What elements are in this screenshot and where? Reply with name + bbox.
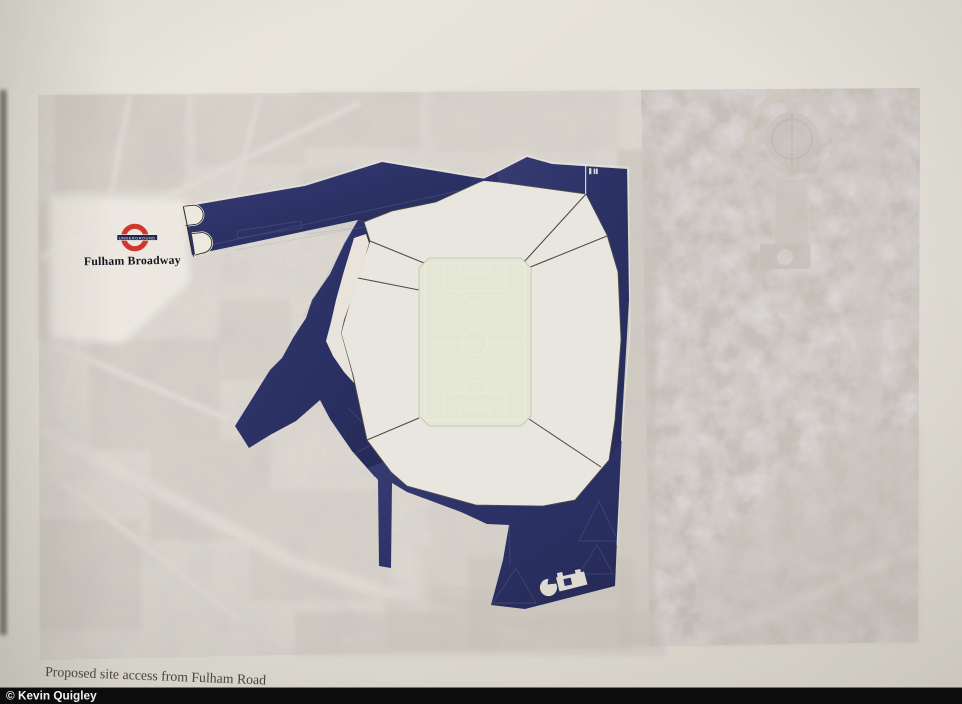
svg-text:© Kevin Quigley: © Kevin Quigley <box>6 689 97 703</box>
